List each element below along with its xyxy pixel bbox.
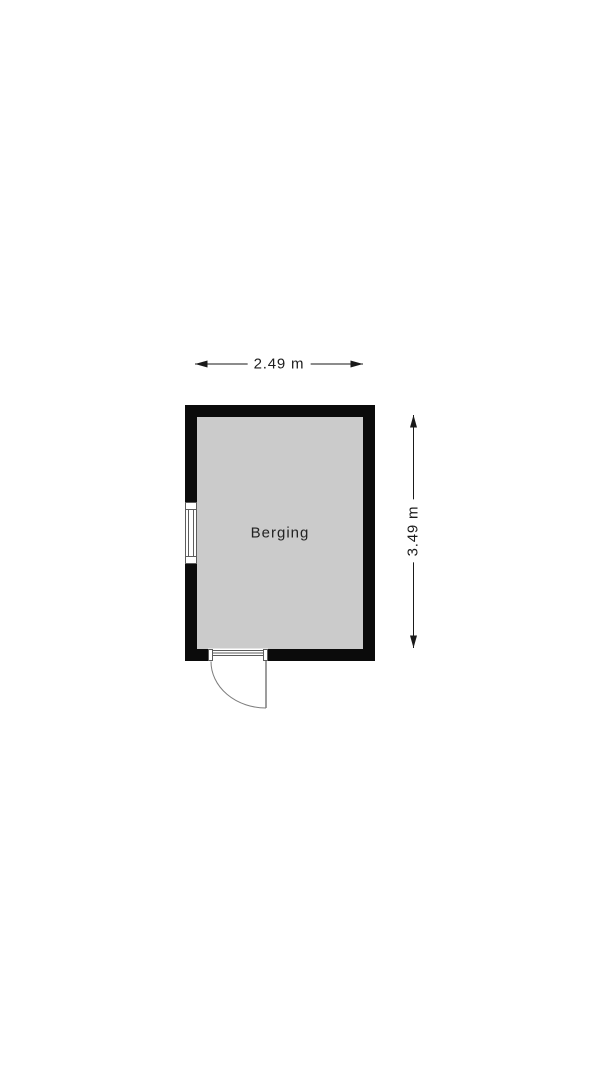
window-glazing bbox=[189, 510, 194, 557]
floorplan-page: { "floorplan": { "room_label": "Berging"… bbox=[0, 0, 600, 1067]
arrowhead-up-icon bbox=[410, 415, 417, 428]
door-jamb-left bbox=[209, 650, 213, 661]
arrowhead-left-icon bbox=[195, 361, 208, 368]
arrowhead-down-icon bbox=[410, 636, 417, 649]
window-icon bbox=[186, 503, 197, 564]
width-dimension-label: 2.49 m bbox=[248, 356, 311, 373]
arrowhead-right-icon bbox=[351, 361, 364, 368]
door-swing-arc bbox=[211, 662, 266, 709]
room-label: Berging bbox=[251, 525, 310, 542]
door-jamb-right bbox=[264, 650, 268, 661]
door-icon bbox=[208, 649, 268, 709]
height-dimension-label: 3.49 m bbox=[405, 500, 422, 563]
